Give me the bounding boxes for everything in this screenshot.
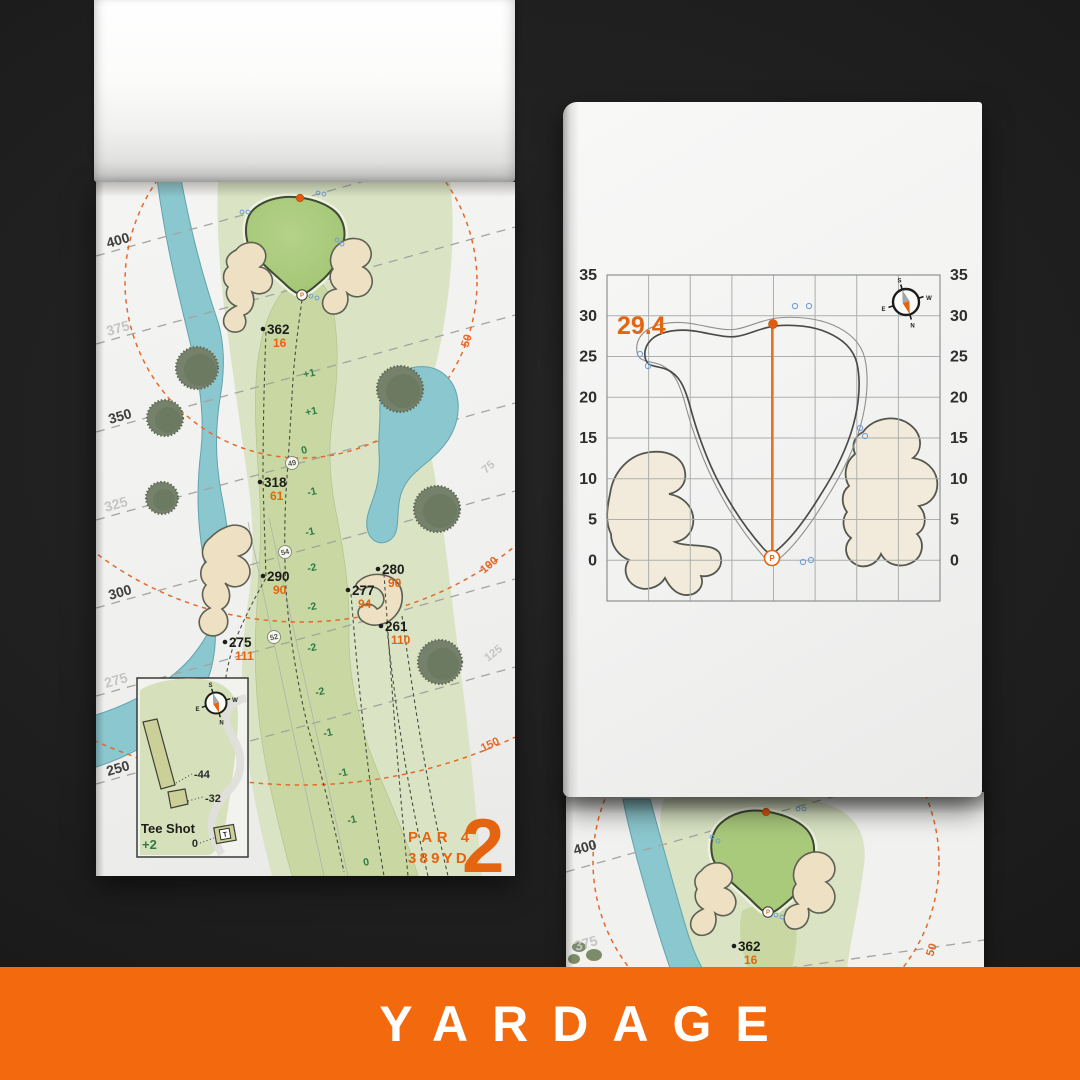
pin-position-dot bbox=[769, 320, 778, 329]
to-green-distance: 90 bbox=[388, 576, 402, 590]
distance-labels: 400 375 350 325 300 275 250 bbox=[102, 229, 133, 779]
axis-labels-left: 35 30 25 20 15 10 5 0 bbox=[579, 267, 597, 569]
distance-label: 350 bbox=[106, 405, 133, 427]
hole-map: 49 54 52 +1 +1 0 -1 -1 -2 -2 -2 -2 -1 -1… bbox=[96, 182, 515, 876]
side-label: 125 bbox=[482, 643, 505, 665]
distance-label: 325 bbox=[102, 493, 129, 515]
green-front-label: P bbox=[766, 910, 770, 916]
tree bbox=[418, 640, 462, 684]
to-green-distance: 94 bbox=[358, 597, 372, 611]
to-green-distance: 61 bbox=[270, 489, 284, 503]
carry-distance: 290 bbox=[267, 569, 290, 584]
yardage-banner: YARDAGE bbox=[0, 967, 1080, 1080]
compass-s: S bbox=[897, 279, 901, 285]
compass-n: N bbox=[219, 721, 223, 727]
tree bbox=[377, 366, 423, 412]
green-front-label: P bbox=[300, 293, 304, 299]
folded-blank-page bbox=[94, 0, 515, 182]
tee-marker-icon: T bbox=[214, 824, 236, 843]
green-front-marker: P bbox=[765, 551, 780, 566]
compass-icon: S W N E bbox=[881, 279, 932, 330]
zero-label: 0 bbox=[192, 838, 198, 850]
carry-distance: 277 bbox=[352, 583, 375, 598]
green-front-label: P bbox=[769, 554, 775, 563]
back-tee-offset: -44 bbox=[194, 769, 211, 781]
banner-title: YARDAGE bbox=[379, 995, 792, 1053]
arc-labels: 50 100 150 75 125 bbox=[459, 333, 505, 755]
to-green-distance: 16 bbox=[744, 953, 758, 967]
to-green-distance: 16 bbox=[273, 336, 287, 350]
forward-tee-box bbox=[168, 789, 188, 808]
axis-label: 25 bbox=[950, 349, 968, 366]
axis-label: 5 bbox=[588, 512, 597, 529]
axis-label: 15 bbox=[950, 430, 968, 447]
axis-label: 25 bbox=[579, 349, 597, 366]
compass-e: E bbox=[881, 307, 885, 313]
axis-label: 10 bbox=[950, 471, 968, 488]
to-green-distance: 90 bbox=[273, 583, 287, 597]
distance-label: 300 bbox=[106, 581, 133, 603]
carry-distance: 261 bbox=[385, 619, 408, 634]
carry-distance: 275 bbox=[229, 635, 252, 650]
tree bbox=[146, 482, 178, 514]
arc-label: 150 bbox=[479, 735, 502, 754]
axis-label: 15 bbox=[579, 430, 597, 447]
pin-position-dot bbox=[296, 194, 304, 202]
axis-label: 20 bbox=[950, 389, 968, 406]
tree bbox=[414, 486, 460, 532]
tee-shot-title: Tee Shot bbox=[141, 821, 196, 836]
compass-w: W bbox=[232, 698, 238, 704]
axis-label: 35 bbox=[579, 267, 597, 284]
carry-distance: 280 bbox=[382, 562, 405, 577]
to-green-distance: 110 bbox=[391, 633, 411, 647]
arc-label: 100 bbox=[478, 555, 500, 577]
axis-label: 35 bbox=[950, 267, 968, 284]
carry-distance: 362 bbox=[738, 939, 761, 954]
pin-position-dot bbox=[762, 808, 770, 816]
compass-e: E bbox=[195, 707, 199, 713]
carry-distance: 362 bbox=[267, 322, 290, 337]
pin-depth-value: 29.4 bbox=[617, 312, 666, 340]
distance-label: 275 bbox=[102, 669, 129, 691]
tree bbox=[147, 400, 183, 436]
compass-w: W bbox=[926, 296, 932, 302]
bunker-front-left bbox=[607, 452, 721, 595]
green-front-marker: P bbox=[297, 290, 307, 300]
next-page-map: P 400 375 50 362 16 bbox=[566, 792, 984, 968]
axis-label: 10 bbox=[579, 471, 597, 488]
tee-shot-elevation: +2 bbox=[142, 837, 157, 852]
axis-label: 0 bbox=[588, 552, 597, 569]
axis-label: 30 bbox=[579, 308, 597, 325]
axis-label: 0 bbox=[950, 552, 959, 569]
distance-label: 400 bbox=[571, 836, 598, 858]
axis-label: 5 bbox=[950, 512, 959, 529]
carry-distance: 318 bbox=[264, 475, 287, 490]
compass-n: N bbox=[910, 324, 914, 330]
side-label: 75 bbox=[480, 458, 498, 476]
axis-labels-right: 35 30 25 20 15 10 5 0 bbox=[950, 267, 968, 569]
green-detail-chart: P 29.4 35 30 25 20 15 10 5 0 35 30 25 20… bbox=[563, 102, 982, 797]
tree bbox=[176, 347, 218, 389]
axis-label: 20 bbox=[579, 389, 597, 406]
axis-label: 30 bbox=[950, 308, 968, 325]
compass-s: S bbox=[208, 683, 212, 689]
tee-inset: S W N E -44 -32 Tee Shot +2 0 bbox=[137, 678, 248, 857]
green-front-marker: P bbox=[763, 907, 773, 917]
yardage-book-scene: 49 54 52 +1 +1 0 -1 -1 -2 -2 -2 -2 -1 -1… bbox=[0, 0, 1080, 1080]
green-detail-page: P 29.4 35 30 25 20 15 10 5 0 35 30 25 20… bbox=[563, 102, 982, 797]
yardage-label: 389YD bbox=[408, 850, 470, 867]
hole-map-page: 49 54 52 +1 +1 0 -1 -1 -2 -2 -2 -2 -1 -1… bbox=[96, 182, 515, 876]
next-page-hole-map: P 400 375 50 362 16 bbox=[566, 792, 984, 968]
bunker-mid-left bbox=[199, 525, 252, 636]
arc-label: 50 bbox=[459, 333, 474, 349]
to-green-distance: 111 bbox=[235, 649, 254, 663]
hole-number: 2 bbox=[462, 804, 504, 876]
forward-tee-offset: -32 bbox=[205, 793, 221, 805]
arc-label: 50 bbox=[924, 942, 939, 958]
